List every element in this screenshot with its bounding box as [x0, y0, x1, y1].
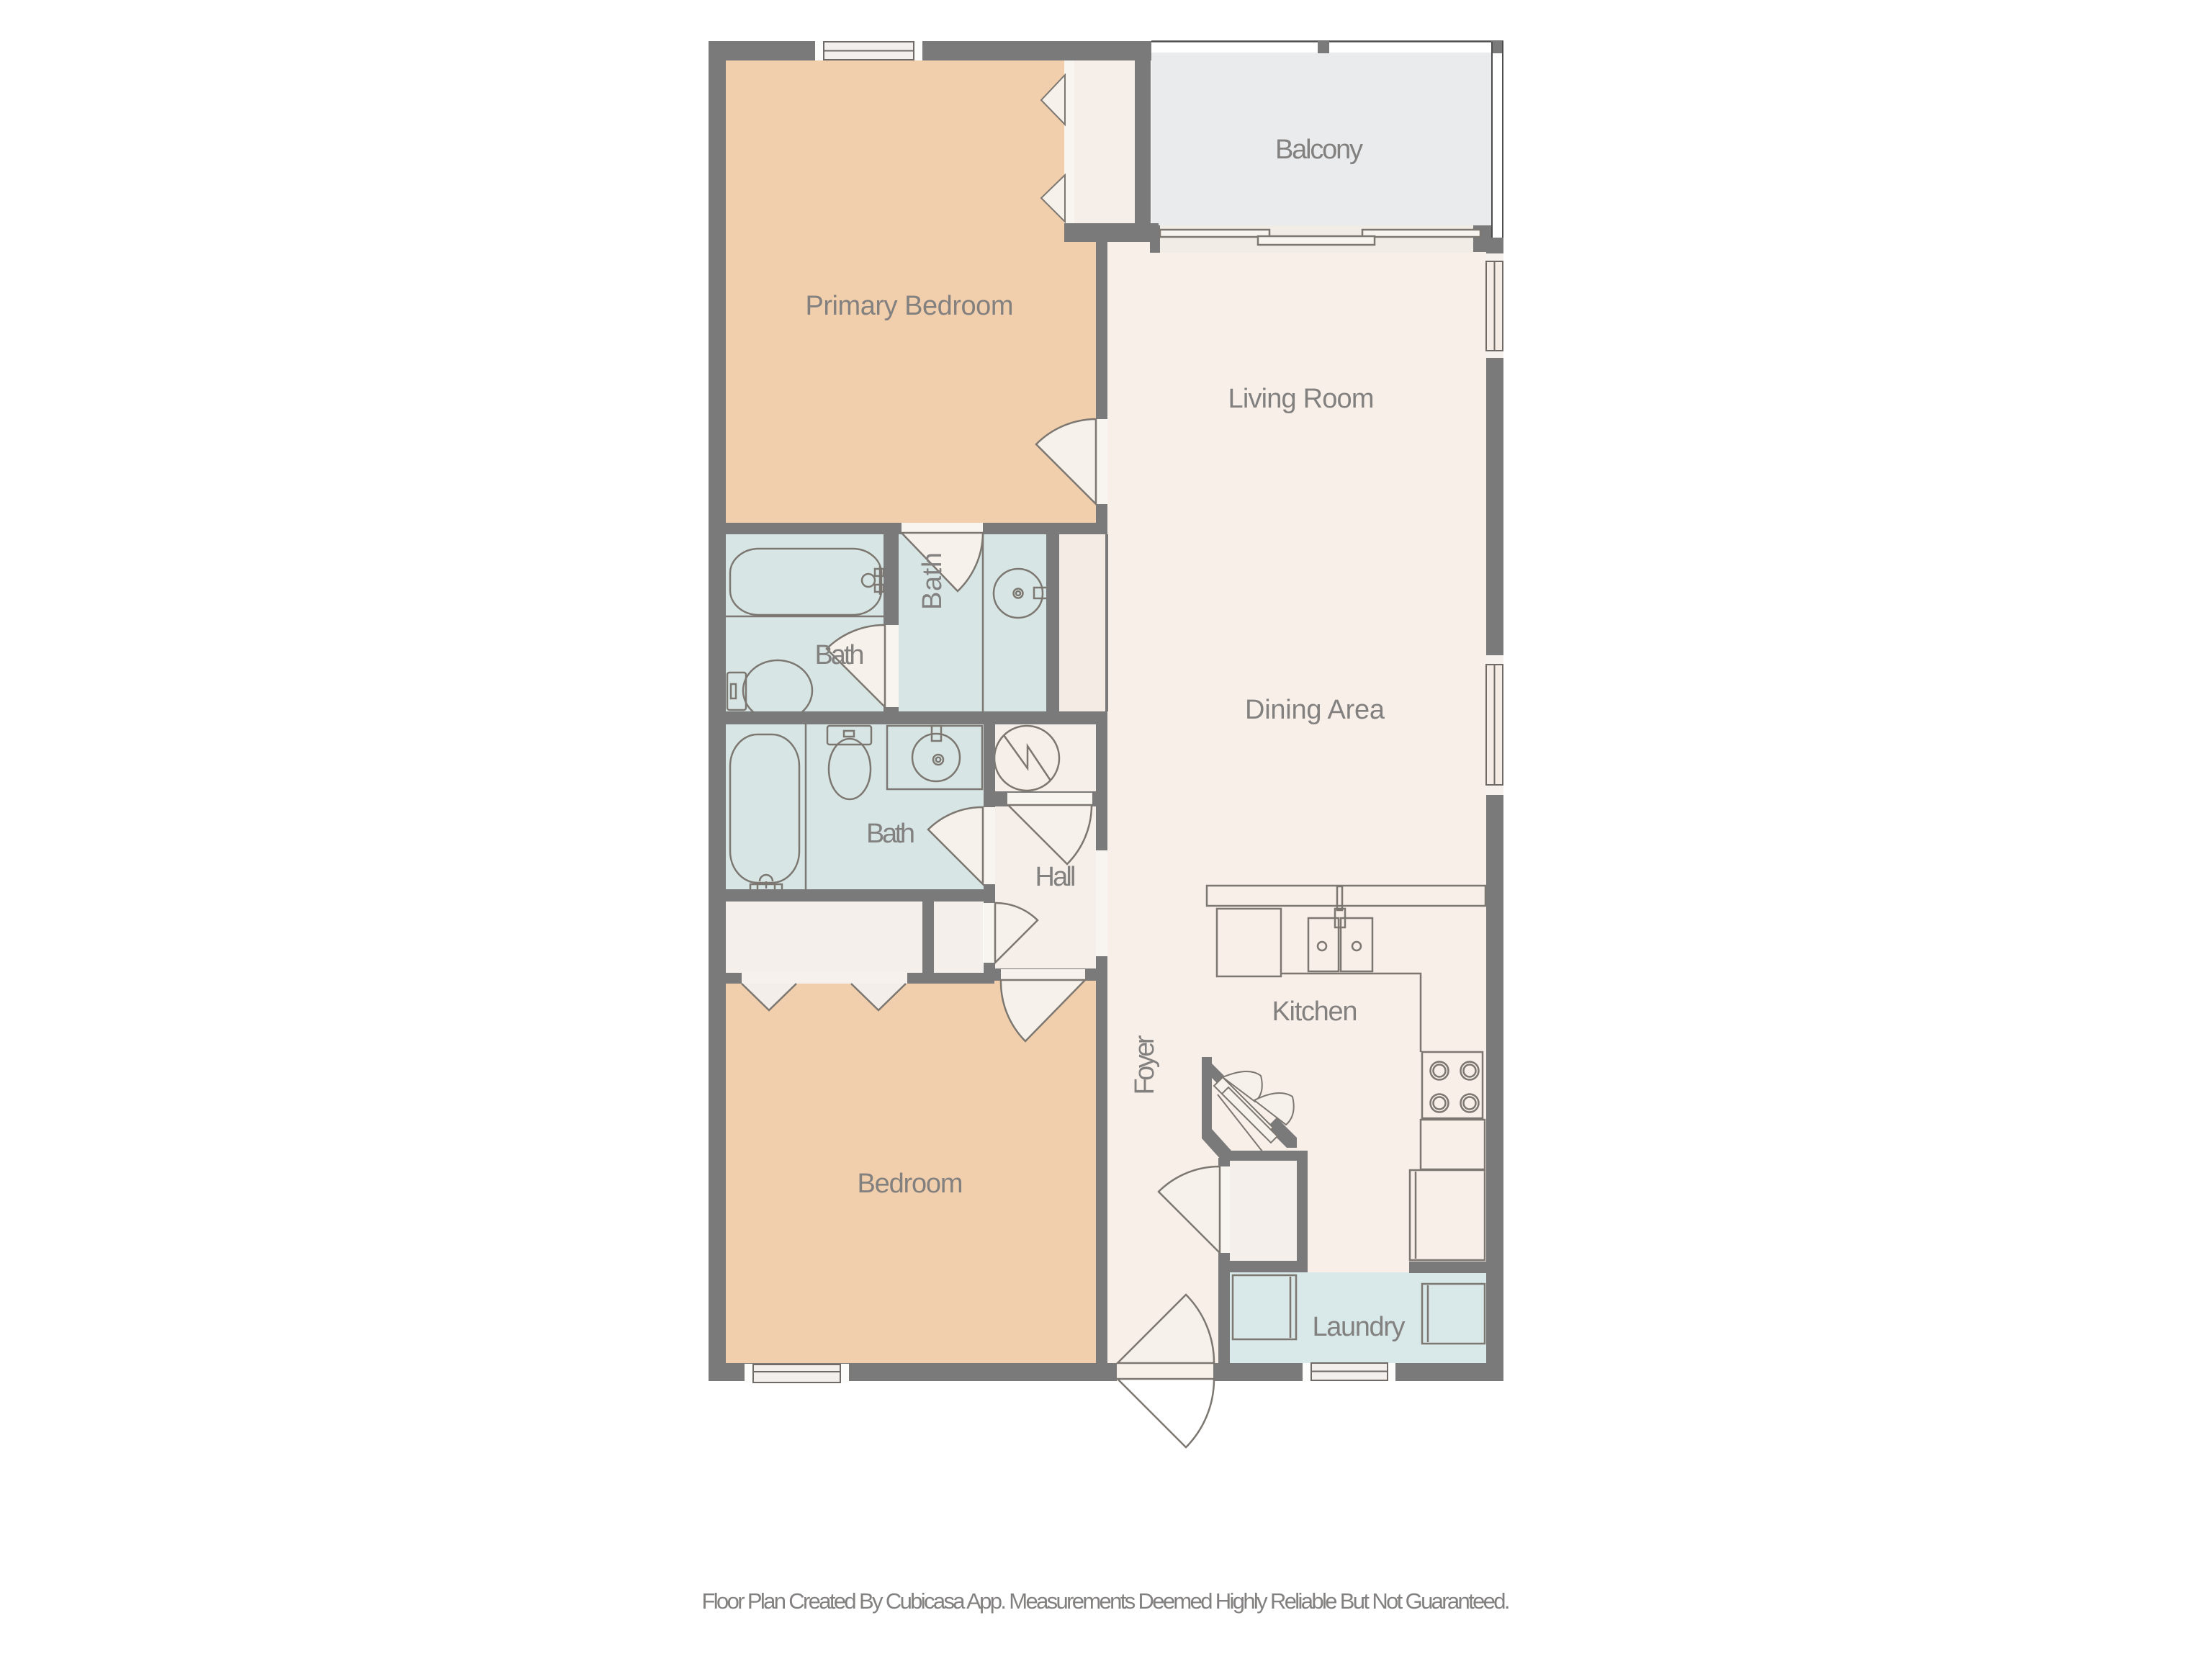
svg-text:Bath: Bath — [917, 552, 948, 610]
svg-text:Bath: Bath — [815, 640, 865, 670]
svg-text:Kitchen: Kitchen — [1272, 997, 1358, 1027]
svg-text:Bath: Bath — [866, 819, 915, 849]
svg-text:Living Room: Living Room — [1228, 384, 1375, 414]
svg-text:Foyer: Foyer — [1130, 1035, 1160, 1094]
svg-text:Floor Plan Created By Cubicasa: Floor Plan Created By Cubicasa App. Meas… — [702, 1588, 1511, 1614]
svg-text:Hall: Hall — [1035, 862, 1076, 892]
svg-text:Laundry: Laundry — [1313, 1312, 1406, 1342]
svg-text:Bedroom: Bedroom — [858, 1169, 963, 1199]
svg-text:Dining Area: Dining Area — [1245, 695, 1385, 725]
svg-text:Balcony: Balcony — [1275, 135, 1363, 165]
svg-text:Primary Bedroom: Primary Bedroom — [806, 291, 1014, 321]
